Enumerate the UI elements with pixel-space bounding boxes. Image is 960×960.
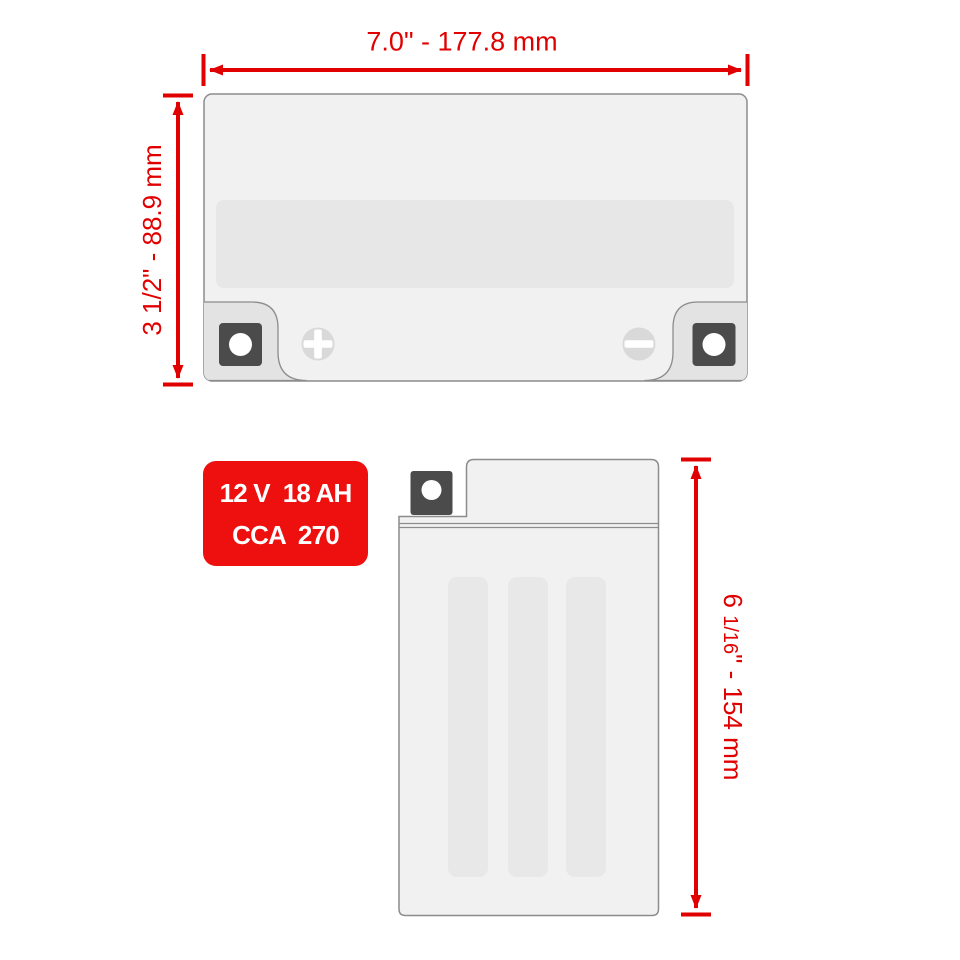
spec-badge: 12 V 18 AH CCA 270: [203, 461, 368, 566]
side-height-whole: 6: [718, 594, 748, 616]
side-height-dimension-label: 6 1/16" - 154 mm: [720, 594, 746, 781]
battery-side-view: [399, 460, 659, 916]
side-height-fraction: 1/16: [719, 615, 741, 654]
height-dimension-arrow: [163, 96, 193, 385]
battery-dimension-diagram: 7.0" - 177.8 mm 3 1/2" - 88.9 mm 6 1/16"…: [0, 0, 960, 960]
battery-vent-stripe: [448, 577, 488, 877]
width-dimension-arrow: [204, 54, 748, 86]
spec-cca: CCA 270: [232, 514, 339, 556]
side-height-dimension-arrow: [681, 460, 711, 915]
battery-vent-stripe: [566, 577, 606, 877]
positive-terminal-icon: [302, 328, 335, 361]
side-height-rest: " - 154 mm: [718, 654, 748, 780]
negative-terminal-icon: [623, 328, 656, 361]
height-dimension-label: 3 1/2" - 88.9 mm: [139, 144, 165, 335]
battery-vent-stripe: [508, 577, 548, 877]
width-dimension-label: 7.0" - 177.8 mm: [366, 29, 557, 56]
battery-label-recess: [216, 200, 734, 288]
battery-top-view: [196, 94, 755, 381]
spec-voltage-capacity: 12 V 18 AH: [220, 472, 352, 514]
side-terminal-bolt-hole: [422, 480, 442, 500]
left-terminal-bolt-icon: [219, 323, 262, 366]
right-terminal-bolt-icon: [693, 323, 736, 366]
